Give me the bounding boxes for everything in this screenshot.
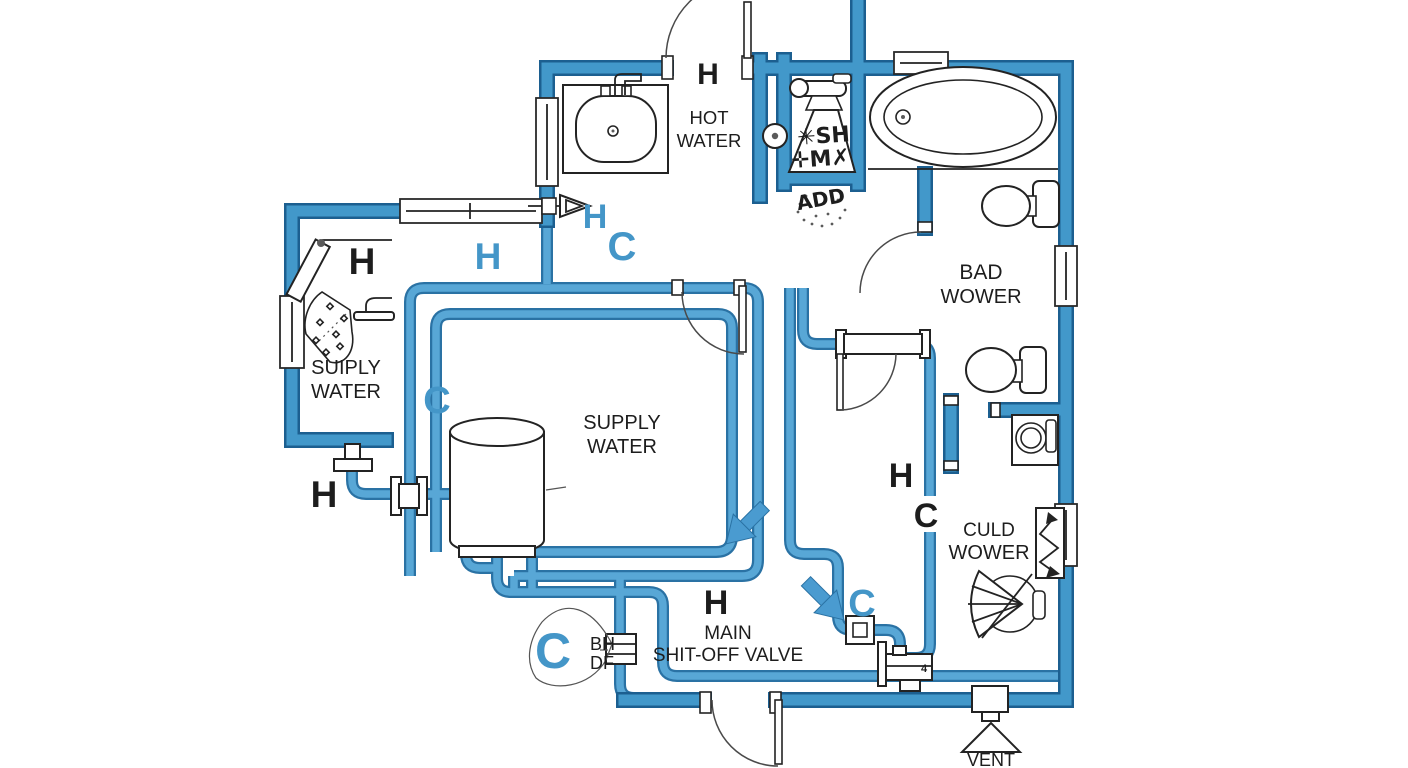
- door-center: [837, 354, 896, 410]
- label-drain-1: BH: [590, 634, 615, 654]
- toilet: [982, 181, 1059, 227]
- label-riser-h: H: [889, 457, 914, 495]
- label-bath-1: BAD: [959, 261, 1002, 284]
- window-right-upper: [1055, 246, 1077, 306]
- label-left-supply-2: WATER: [311, 381, 381, 403]
- label-cold-1: CULD: [963, 520, 1015, 541]
- tee-valve: [334, 444, 372, 471]
- wall-dial: [763, 124, 787, 148]
- label-shutoff-2: SHIT-OFF VALVE: [653, 645, 803, 666]
- zigzag-valve: [1036, 508, 1064, 578]
- label-hot-water-1: HOT: [689, 107, 728, 128]
- label-add-note: ADD: [795, 183, 847, 215]
- window-hall-horizontal: [400, 199, 542, 223]
- label-drain-2: DF: [590, 653, 614, 673]
- label-entry-h: H: [697, 58, 719, 91]
- label-cold-2: WOWER: [948, 542, 1029, 564]
- label-hot-water-2: WATER: [677, 130, 742, 151]
- sink: [563, 74, 668, 173]
- washing-machine: [1012, 415, 1058, 465]
- label-heater-h: H: [311, 474, 338, 515]
- label-entry-h-blue: H: [583, 198, 608, 236]
- label-bath-2: WOWER: [940, 286, 1021, 308]
- bathtub: [868, 67, 1058, 169]
- plumbing-diagram: 4: [0, 0, 1408, 768]
- label-hall-h-blue: H: [475, 236, 502, 277]
- door-bath: [860, 232, 921, 293]
- label-cone-2: ✛M✗: [790, 145, 850, 174]
- label-riser-c: C: [914, 497, 939, 535]
- door-left-room: [287, 239, 392, 302]
- label-shutoff-1: MAIN: [704, 623, 752, 644]
- label-branch-c-blue: C: [848, 583, 875, 625]
- water-heater: [450, 418, 566, 557]
- label-left-supply-1: SUIPLY: [311, 357, 381, 379]
- door-top-entry: [666, 0, 751, 58]
- window-sink-room: [536, 98, 558, 186]
- label-entry-c-blue: C: [608, 225, 637, 269]
- pipe-union: [836, 330, 930, 358]
- valve-number: 4: [921, 663, 928, 675]
- shower-head: [305, 292, 394, 363]
- toilet-2: [966, 347, 1046, 393]
- label-drain-c-blue: C: [535, 623, 571, 679]
- label-center-supply-1: SUPPLY: [583, 412, 660, 434]
- fan-shower: [968, 571, 1045, 638]
- label-vent: VENT: [967, 750, 1015, 768]
- window-left-room: [280, 296, 304, 368]
- label-loop-c-blue: C: [423, 380, 450, 422]
- label-center-supply-2: WATER: [587, 436, 657, 458]
- label-shutoff-h: H: [704, 584, 729, 622]
- label-left-h: H: [349, 241, 376, 282]
